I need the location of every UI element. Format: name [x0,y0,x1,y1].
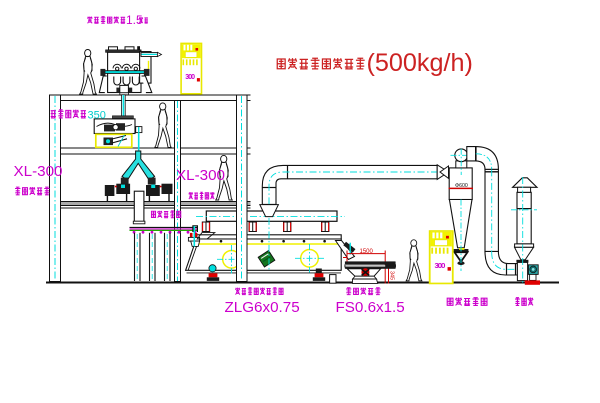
svg-text:(500kg/h): (500kg/h) [367,49,473,77]
svg-text:1.5: 1.5 [126,13,143,27]
svg-text:350: 350 [88,109,106,121]
svg-text:FS0.6x1.5: FS0.6x1.5 [336,299,405,316]
svg-text:Φ600: Φ600 [455,183,468,189]
svg-text:345: 345 [389,271,395,280]
svg-text:1500: 1500 [360,249,374,255]
svg-text:XL-300: XL-300 [176,167,225,184]
svg-text:ZLG6x0.75: ZLG6x0.75 [225,299,300,316]
svg-text:XL-300: XL-300 [14,163,63,180]
